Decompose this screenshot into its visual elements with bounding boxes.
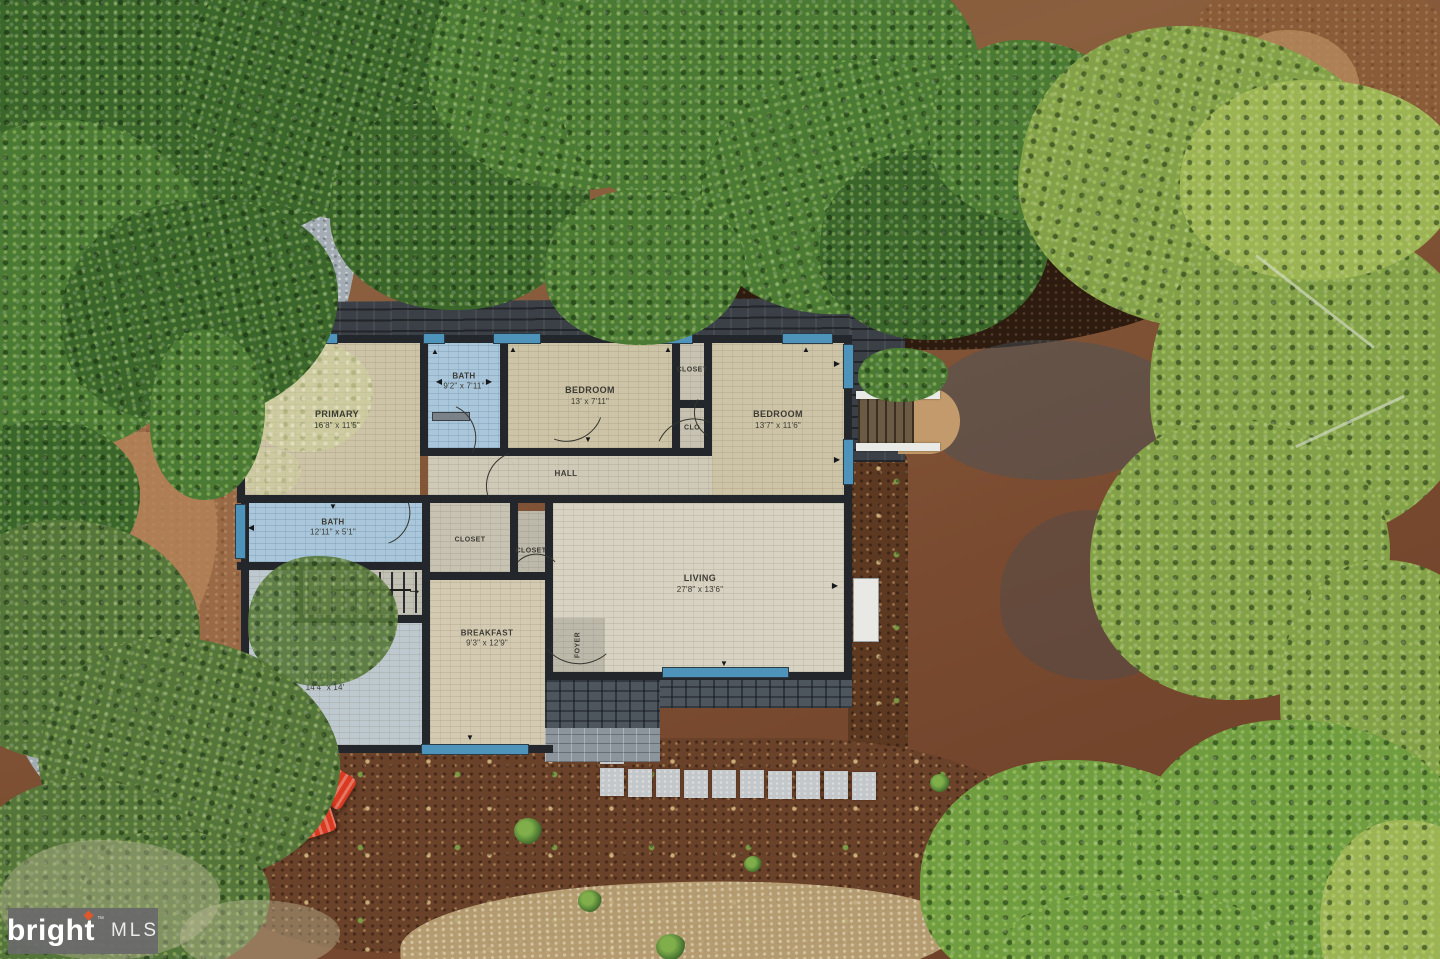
label-primary: PRIMARY 16'8" x 11'5" [314, 409, 360, 431]
shrub [578, 890, 602, 912]
aerial-photo-scene: → DN PRIMARY 16'8" x 11'5" BATH 9'2" x 7… [0, 0, 1440, 959]
wall [420, 335, 428, 456]
patio-bricks [545, 728, 660, 762]
stepping-stone [824, 771, 848, 799]
window-marker [783, 334, 832, 343]
stepping-stone [852, 772, 876, 800]
marker-down: ▼ [329, 503, 337, 511]
stepping-stone [628, 769, 652, 797]
label-bath-top: BATH 9'2" x 7'11" [443, 372, 484, 393]
stepping-stone [768, 771, 792, 799]
marker-right: ▶ [486, 378, 492, 386]
marker-right: ▶ [832, 582, 838, 590]
label-closet-b: CLOSET [516, 546, 547, 555]
deck-stairs [858, 399, 914, 443]
label-hall: HALL [555, 469, 578, 479]
stepping-stone [796, 771, 820, 799]
wall [422, 572, 545, 580]
window-marker [236, 505, 245, 558]
stepping-stone [600, 768, 624, 796]
marker-down: ▼ [584, 436, 592, 444]
marker-left: ◀ [248, 524, 254, 532]
window-marker [844, 345, 853, 388]
stepping-stone [656, 769, 680, 797]
window-marker [494, 334, 540, 343]
wall [422, 503, 430, 753]
label-bath-left: BATH 12'11" x 5'1" [310, 518, 356, 539]
marker-up: ▲ [431, 348, 439, 356]
wall [500, 335, 508, 456]
dry-grass-patch [180, 900, 340, 959]
wall [510, 503, 518, 580]
marker-right: ▶ [834, 456, 840, 464]
porch-roof-left [545, 680, 660, 732]
tree-canopy-right [1180, 80, 1440, 280]
marker-up: ▲ [664, 346, 672, 354]
room-breakfast [430, 580, 545, 745]
marker-left: ◀ [436, 378, 442, 386]
marker-down: ▼ [466, 734, 474, 742]
label-closet-top: CLOSET [677, 365, 708, 374]
marker-up: ▲ [802, 346, 810, 354]
window-marker [422, 745, 528, 754]
marker-right: ▶ [834, 360, 840, 368]
window-marker [424, 334, 444, 343]
shrub [744, 856, 762, 872]
label-clo: CLO [684, 423, 700, 432]
utility-box [853, 578, 879, 642]
marker-up: ▲ [509, 346, 517, 354]
shrub [930, 774, 950, 792]
marker-down: ▼ [720, 660, 728, 668]
label-living: LIVING 27'8" x 13'6" [677, 573, 723, 595]
wall [704, 340, 712, 456]
label-closet-a: CLOSET [455, 535, 486, 544]
stepping-stone [684, 770, 708, 798]
trademark-symbol: ™ [97, 916, 104, 923]
wall [420, 448, 712, 456]
shrub [656, 934, 686, 959]
label-bedroom-right: BEDROOM 13'7" x 11'6" [753, 409, 803, 431]
brand-wordmark: bright [7, 914, 95, 948]
deck-stair-rail [856, 443, 940, 451]
window-marker [663, 668, 788, 677]
label-foyer: FOYER [573, 632, 582, 658]
label-breakfast: BREAKFAST 9'3" x 12'9" [461, 629, 514, 650]
bright-mls-watermark: bright ™ MLS [8, 908, 158, 954]
house-floor-plan-overlay: → DN PRIMARY 16'8" x 11'5" BATH 9'2" x 7… [237, 300, 905, 762]
brand-suffix: MLS [111, 920, 159, 942]
stepping-stone [712, 770, 736, 798]
window-marker [844, 440, 853, 484]
shrub [514, 818, 542, 844]
stepping-stone [740, 770, 764, 798]
label-bedroom-mid: BEDROOM 13' x 7'11" [565, 385, 615, 407]
